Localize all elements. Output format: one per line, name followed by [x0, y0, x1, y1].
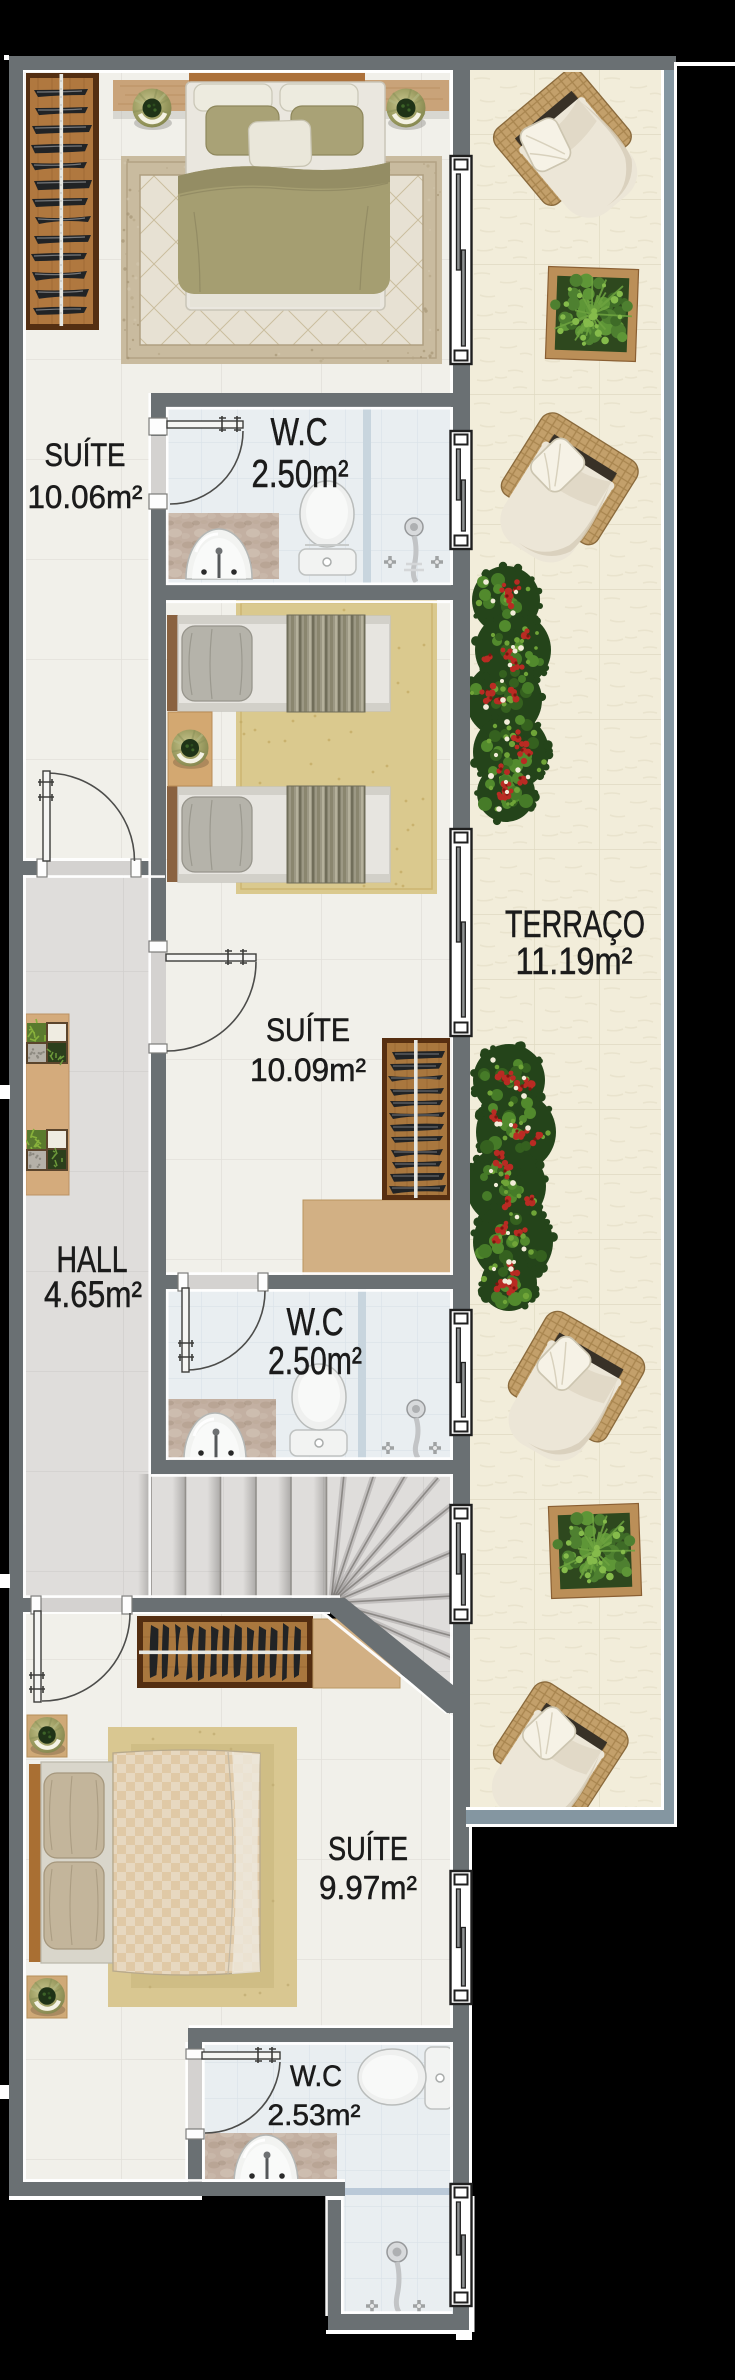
svg-text:2.50m²: 2.50m²	[268, 1340, 362, 1383]
svg-text:SUÍTE: SUÍTE	[266, 1012, 350, 1048]
svg-text:10.09m²: 10.09m²	[250, 1052, 366, 1088]
svg-text:10.06m²: 10.06m²	[28, 479, 143, 515]
svg-text:9.97m²: 9.97m²	[319, 1869, 417, 1906]
svg-text:SUÍTE: SUÍTE	[328, 1830, 408, 1867]
svg-text:SUÍTE: SUÍTE	[45, 437, 126, 473]
svg-text:4.65m²: 4.65m²	[44, 1274, 142, 1315]
svg-text:2.53m²: 2.53m²	[268, 2099, 361, 2132]
svg-text:W.C: W.C	[271, 411, 328, 454]
svg-text:W.C: W.C	[290, 2060, 342, 2093]
svg-text:W.C: W.C	[287, 1301, 344, 1344]
svg-text:11.19m²: 11.19m²	[516, 941, 633, 983]
svg-text:2.50m²: 2.50m²	[252, 453, 349, 496]
svg-text:TERRAÇO: TERRAÇO	[505, 904, 645, 946]
